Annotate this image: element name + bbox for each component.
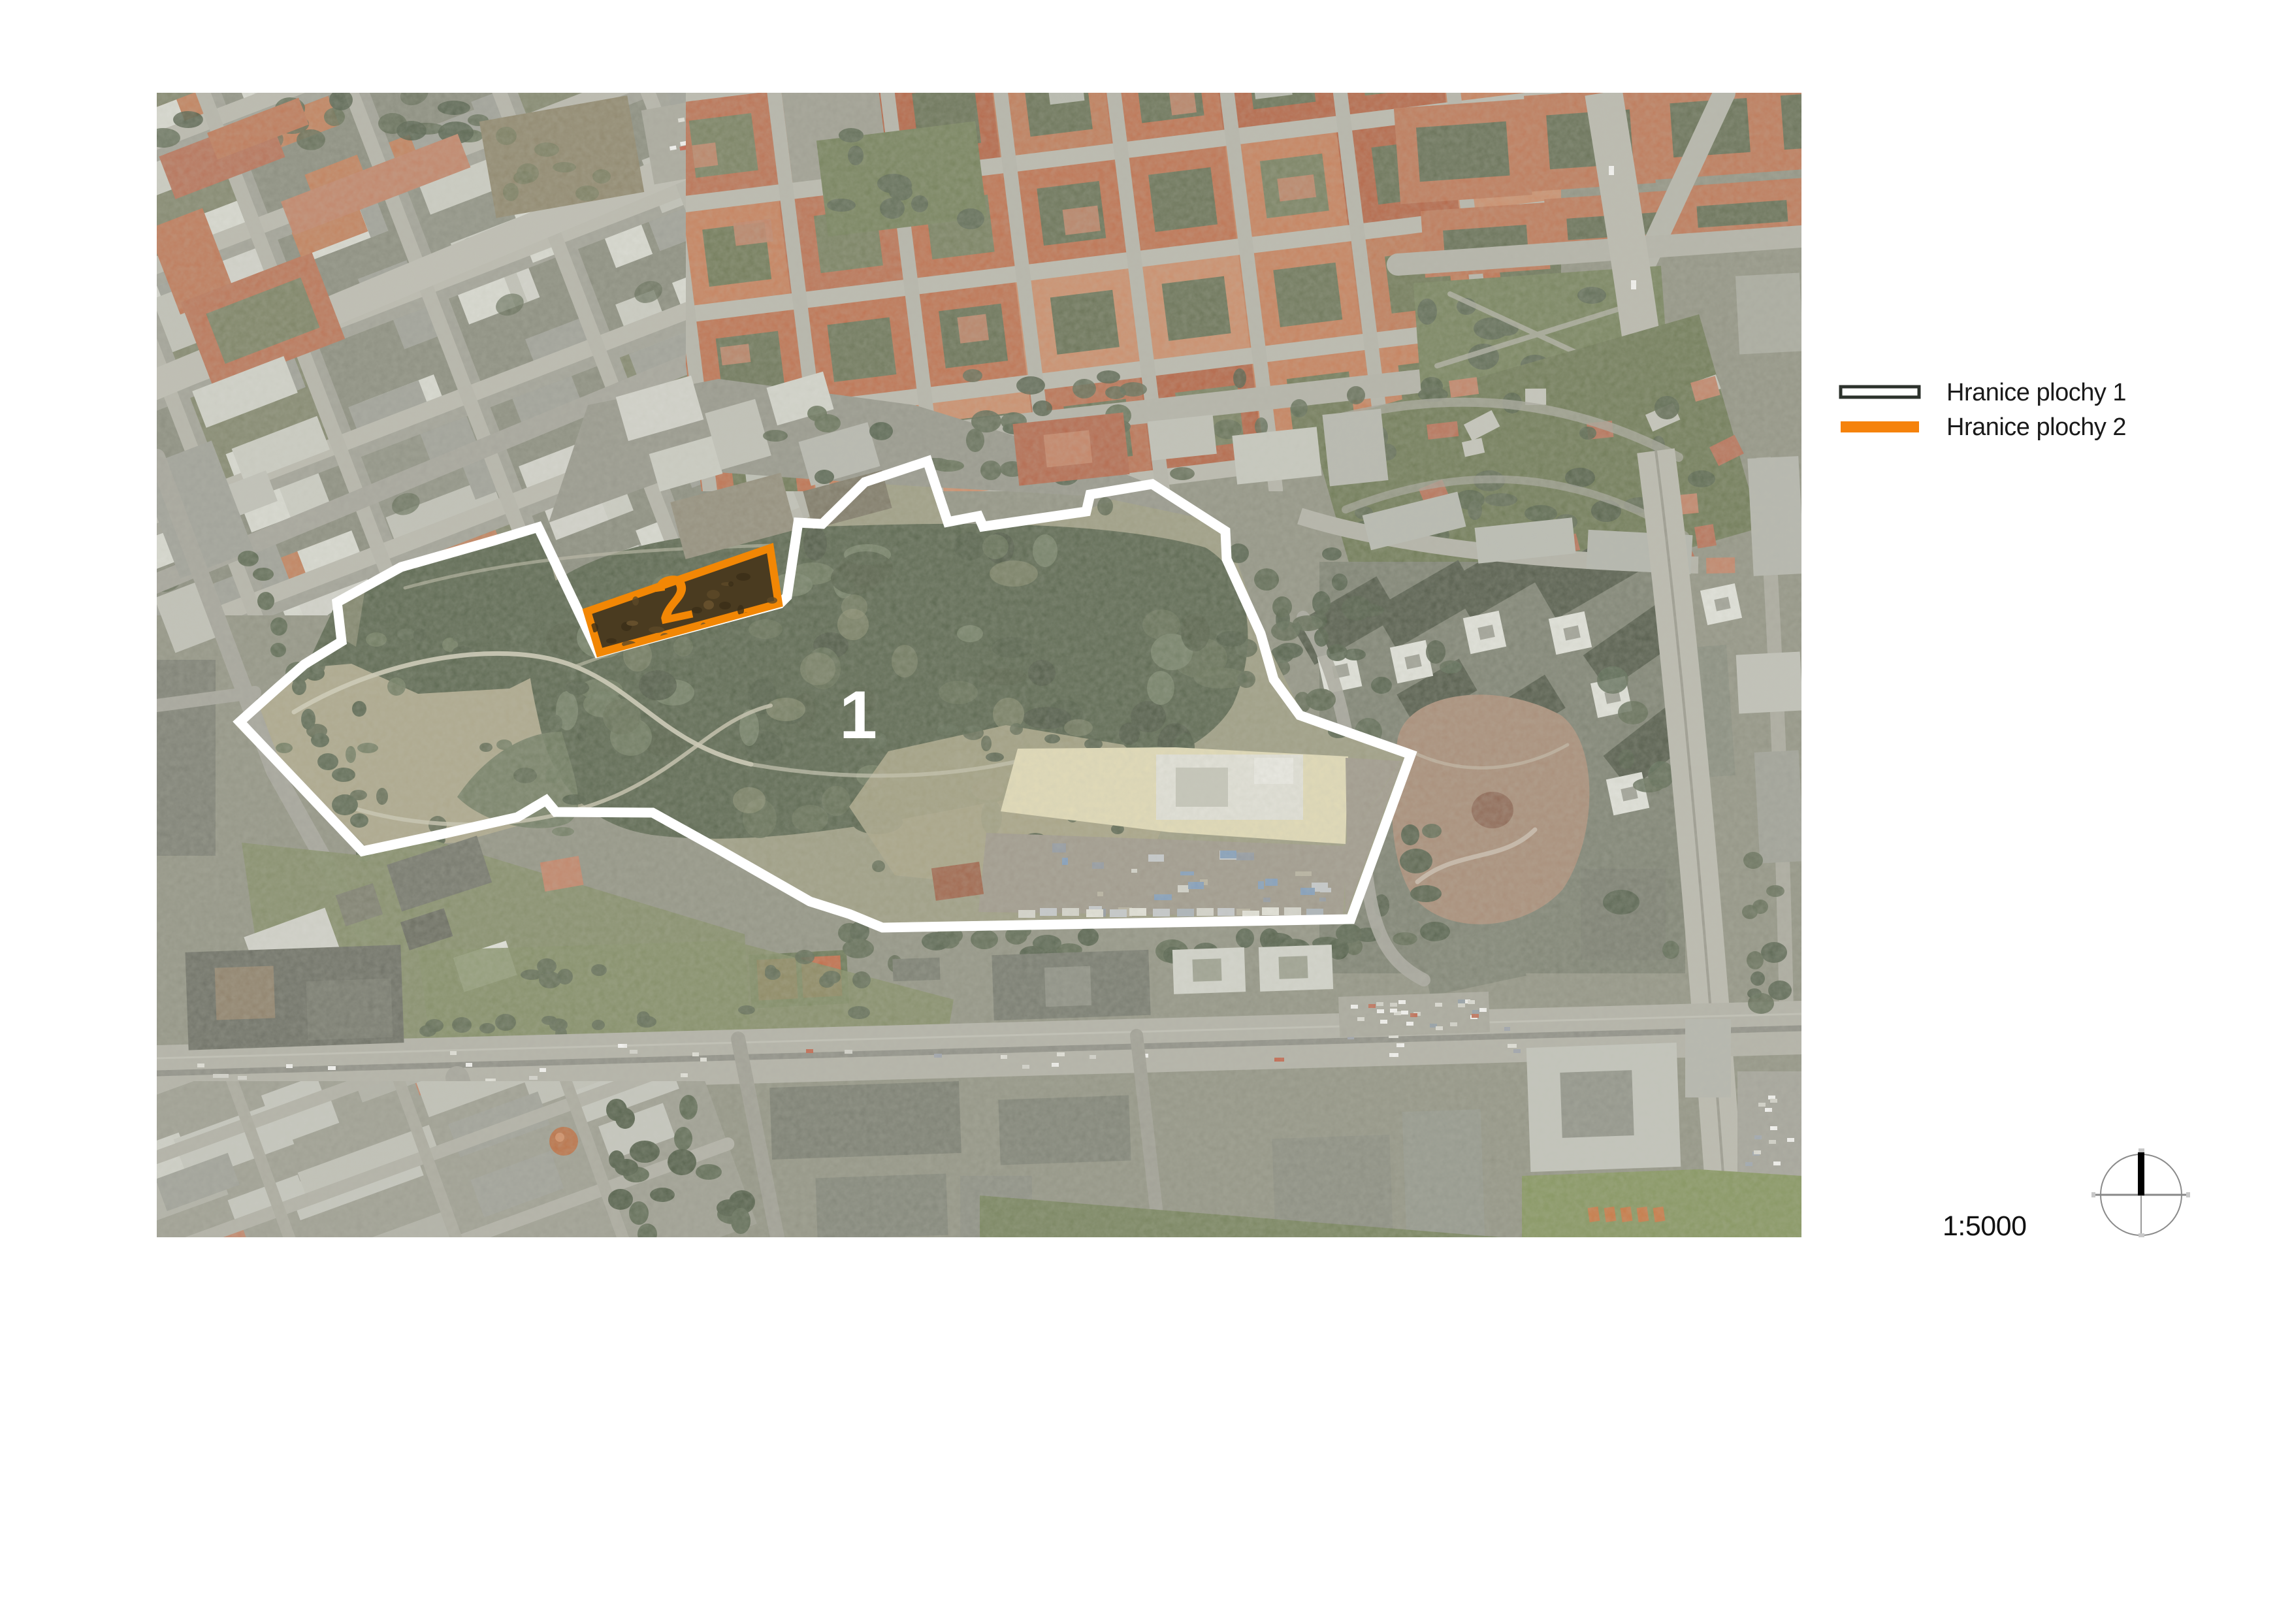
svg-text:Hranice plochy 1: Hranice plochy 1 <box>1946 379 2126 406</box>
svg-text:1: 1 <box>839 677 877 753</box>
svg-text:Hranice plochy 2: Hranice plochy 2 <box>1946 414 2126 441</box>
svg-text:1:5000: 1:5000 <box>1943 1210 2027 1242</box>
